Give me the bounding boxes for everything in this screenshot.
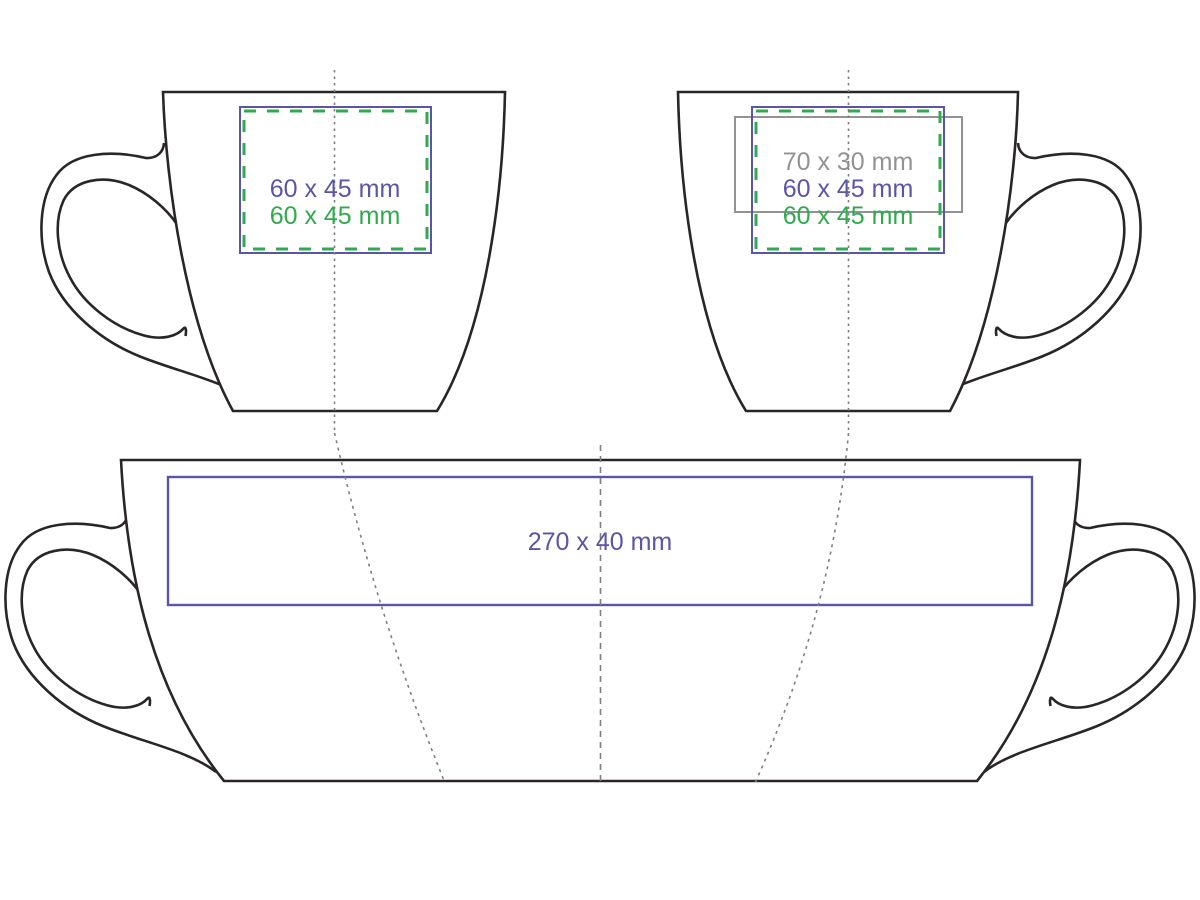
wrap-blue-area-label: 270 x 40 mm xyxy=(528,528,673,556)
mug-print-template-drawing: 60 x 45 mm 60 x 45 mm 70 x 30 mm 60 x 45… xyxy=(0,0,1200,900)
front-blue-area-label: 60 x 45 mm xyxy=(270,175,401,203)
drawing-canvas: 60 x 45 mm 60 x 45 mm 70 x 30 mm 60 x 45… xyxy=(0,0,1200,900)
back-gray-area-label: 70 x 30 mm xyxy=(783,148,914,176)
back-blue-area-label: 60 x 45 mm xyxy=(783,175,914,203)
front-green-area-label: 60 x 45 mm xyxy=(270,202,401,230)
back-green-area-label: 60 x 45 mm xyxy=(783,202,914,230)
